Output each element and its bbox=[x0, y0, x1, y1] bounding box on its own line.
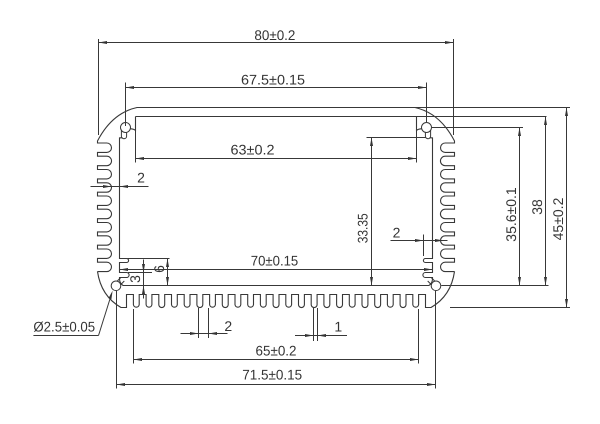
svg-text:Ø2.5±0.05: Ø2.5±0.05 bbox=[33, 319, 95, 335]
svg-text:3: 3 bbox=[127, 275, 143, 283]
svg-text:6: 6 bbox=[151, 265, 167, 273]
svg-text:80±0.2: 80±0.2 bbox=[254, 27, 295, 43]
svg-text:67.5±0.15: 67.5±0.15 bbox=[241, 72, 305, 88]
svg-text:2: 2 bbox=[137, 169, 145, 185]
svg-text:63±0.2: 63±0.2 bbox=[231, 142, 275, 158]
svg-text:65±0.2: 65±0.2 bbox=[256, 342, 297, 358]
svg-text:1: 1 bbox=[334, 318, 342, 334]
svg-text:2: 2 bbox=[393, 225, 401, 241]
svg-text:2: 2 bbox=[224, 318, 232, 334]
svg-text:70±0.15: 70±0.15 bbox=[251, 253, 299, 269]
svg-text:45±0.2: 45±0.2 bbox=[550, 197, 566, 240]
svg-text:71.5±0.15: 71.5±0.15 bbox=[242, 366, 302, 382]
svg-text:33.35: 33.35 bbox=[355, 213, 371, 243]
svg-text:38: 38 bbox=[529, 199, 545, 215]
svg-text:35.6±0.1: 35.6±0.1 bbox=[503, 187, 519, 242]
